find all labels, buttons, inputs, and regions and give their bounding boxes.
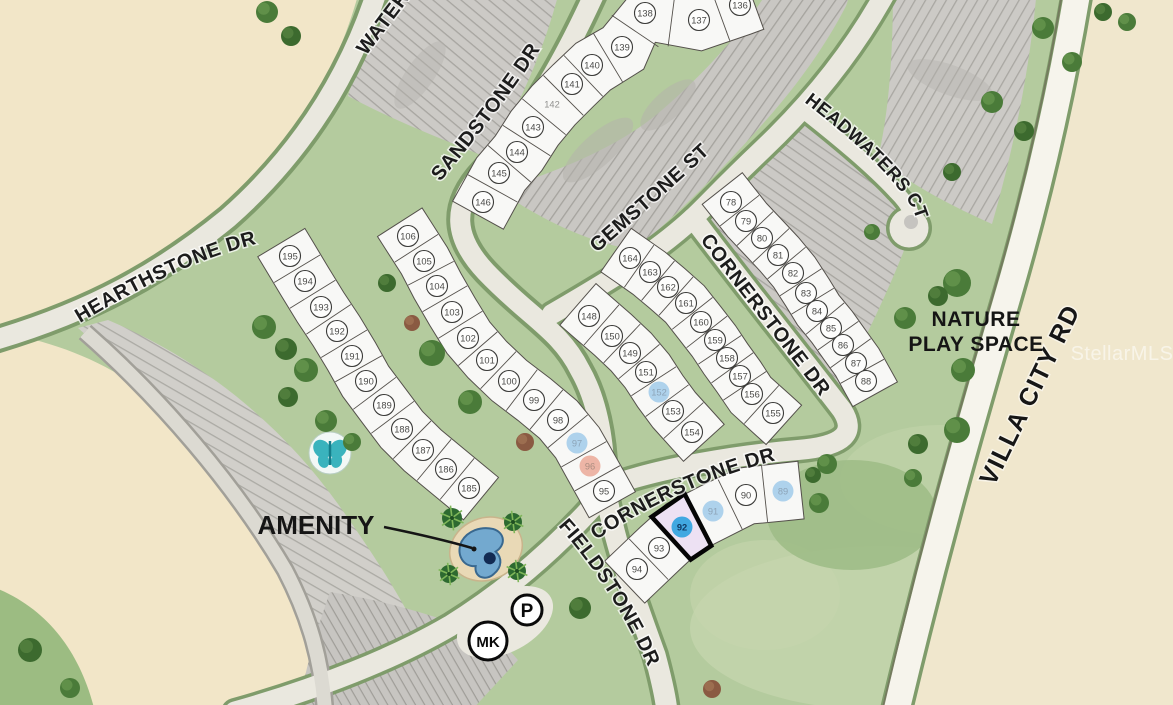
parking-icon: P [512, 595, 542, 625]
svg-text:91: 91 [708, 506, 718, 516]
nature-play-space-label-line1: NATURE [932, 308, 1021, 331]
tree-icon [943, 163, 961, 181]
lot-188-marker: 188 [392, 419, 413, 440]
svg-text:78: 78 [726, 197, 736, 207]
lot-141-marker: 141 [562, 74, 583, 95]
site-plan-map: 1951941931921911901891881871861851361371… [0, 0, 1173, 705]
svg-text:188: 188 [394, 424, 410, 434]
tree-icon [809, 493, 829, 513]
lot-156-marker: 156 [742, 384, 763, 405]
svg-text:103: 103 [444, 307, 460, 317]
svg-text:101: 101 [479, 355, 495, 365]
svg-text:90: 90 [741, 490, 751, 500]
lot-155-marker: 155 [763, 403, 784, 424]
svg-text:194: 194 [297, 276, 313, 286]
lot-96-marker: 96 [580, 456, 601, 477]
tree-icon [275, 338, 297, 360]
tree-icon [981, 91, 1003, 113]
svg-text:106: 106 [400, 231, 416, 241]
tree-icon [516, 433, 534, 451]
svg-text:146: 146 [475, 197, 491, 207]
tree-icon [944, 417, 970, 443]
lot-101-marker: 101 [477, 350, 498, 371]
lot-151-marker: 151 [636, 362, 657, 383]
lot-144-marker: 144 [507, 142, 528, 163]
lot-159-marker: 159 [705, 330, 726, 351]
lot-150-marker: 150 [602, 326, 623, 347]
lot-195-marker: 195 [280, 246, 301, 267]
svg-text:99: 99 [529, 395, 539, 405]
lot-158-marker: 158 [717, 348, 738, 369]
mail-kiosk-icon: MK [469, 622, 507, 660]
tree-icon [703, 680, 721, 698]
svg-text:160: 160 [693, 317, 709, 327]
lot-104-marker: 104 [427, 276, 448, 297]
svg-text:94: 94 [632, 564, 642, 574]
lot-99-marker: 99 [524, 390, 545, 411]
lot-83-marker: 83 [796, 283, 817, 304]
lot-89-marker: 89 [773, 481, 794, 502]
mail-kiosk-letters: MK [476, 634, 499, 651]
lot-161-marker: 161 [676, 293, 697, 314]
svg-text:98: 98 [553, 415, 563, 425]
svg-text:152: 152 [651, 387, 667, 397]
tree-icon [1062, 52, 1082, 72]
lot-189-marker: 189 [374, 395, 395, 416]
svg-text:104: 104 [429, 281, 445, 291]
tree-icon [281, 26, 301, 46]
lot-140-marker: 140 [582, 55, 603, 76]
tree-icon [817, 454, 837, 474]
lot-81-marker: 81 [768, 245, 789, 266]
svg-text:155: 155 [765, 408, 781, 418]
svg-text:84: 84 [812, 306, 822, 316]
lot-160-marker: 160 [691, 312, 712, 333]
lot-153-marker: 153 [663, 401, 684, 422]
svg-text:159: 159 [707, 335, 723, 345]
tree-icon [904, 469, 922, 487]
svg-text:139: 139 [614, 42, 630, 52]
tree-icon [908, 434, 928, 454]
svg-text:150: 150 [604, 331, 620, 341]
svg-text:85: 85 [826, 323, 836, 333]
lot-148-marker: 148 [579, 306, 600, 327]
lot-185-marker: 185 [459, 478, 480, 499]
plat-svg: 1951941931921911901891881871861851361371… [0, 0, 1173, 705]
lot-149-marker: 149 [620, 343, 641, 364]
svg-text:140: 140 [584, 60, 600, 70]
lot-102-marker: 102 [458, 328, 479, 349]
svg-text:193: 193 [313, 302, 329, 312]
tree-icon [458, 390, 482, 414]
lot-103-marker: 103 [442, 302, 463, 323]
lot-100-marker: 100 [499, 371, 520, 392]
lot-163-marker: 163 [640, 262, 661, 283]
svg-text:143: 143 [525, 122, 541, 132]
lot-92-marker: 92 [672, 517, 693, 538]
svg-text:185: 185 [461, 483, 477, 493]
tree-icon [864, 224, 880, 240]
tree-icon [1014, 121, 1034, 141]
lot-94-marker: 94 [627, 559, 648, 580]
lot-98-marker: 98 [548, 410, 569, 431]
lot-139-marker: 139 [612, 37, 633, 58]
lot-91-marker: 91 [703, 501, 724, 522]
svg-text:162: 162 [660, 282, 676, 292]
lot-157-marker: 157 [730, 366, 751, 387]
lot-93-marker: 93 [649, 538, 670, 559]
lot-106-marker: 106 [398, 226, 419, 247]
lot-187-marker: 187 [413, 440, 434, 461]
svg-text:151: 151 [638, 367, 654, 377]
svg-text:154: 154 [684, 427, 700, 437]
svg-text:149: 149 [622, 348, 638, 358]
svg-text:86: 86 [838, 340, 848, 350]
tree-icon [315, 410, 337, 432]
tree-icon [894, 307, 916, 329]
tree-icon [951, 358, 975, 382]
tree-icon [928, 286, 948, 306]
svg-text:92: 92 [677, 522, 687, 532]
svg-text:87: 87 [851, 358, 861, 368]
svg-text:153: 153 [665, 406, 681, 416]
svg-text:145: 145 [491, 168, 507, 178]
tree-icon [1094, 3, 1112, 21]
svg-text:88: 88 [861, 376, 871, 386]
svg-text:138: 138 [637, 8, 653, 18]
tree-icon [1032, 17, 1054, 39]
lot-145-marker: 145 [489, 163, 510, 184]
svg-text:137: 137 [691, 15, 707, 25]
lot-136-marker: 136 [730, 0, 751, 16]
tree-icon [256, 1, 278, 23]
svg-text:144: 144 [509, 147, 525, 157]
lot-194-marker: 194 [295, 271, 316, 292]
svg-text:100: 100 [501, 376, 517, 386]
tree-icon [378, 274, 396, 292]
lot-142-number: 142 [544, 99, 560, 109]
lot-164-marker: 164 [620, 248, 641, 269]
svg-text:89: 89 [778, 486, 788, 496]
lot-191-marker: 191 [342, 346, 363, 367]
lot-162-marker: 162 [658, 277, 679, 298]
lot-137-marker: 137 [689, 10, 710, 31]
tree-icon [805, 467, 821, 483]
svg-text:163: 163 [642, 267, 658, 277]
svg-text:93: 93 [654, 543, 664, 553]
lot-154-marker: 154 [682, 422, 703, 443]
lot-143-marker: 143 [523, 117, 544, 138]
svg-text:95: 95 [599, 486, 609, 496]
tree-icon [404, 315, 420, 331]
tree-icon [569, 597, 591, 619]
tree-icon [419, 340, 445, 366]
svg-text:191: 191 [344, 351, 360, 361]
svg-text:190: 190 [358, 376, 374, 386]
lot-97-marker: 97 [567, 433, 588, 454]
tree-icon [252, 315, 276, 339]
svg-text:82: 82 [788, 268, 798, 278]
tree-icon [18, 638, 42, 662]
stellar-mls-watermark: StellarMLS [1071, 343, 1173, 365]
lot-95-marker: 95 [594, 481, 615, 502]
lot-78-marker: 78 [721, 192, 742, 213]
lot-138-marker: 138 [635, 3, 656, 24]
lot-152-marker: 152 [649, 382, 670, 403]
svg-text:157: 157 [732, 371, 748, 381]
lot-86-marker: 86 [833, 335, 854, 356]
svg-text:148: 148 [581, 311, 597, 321]
svg-text:105: 105 [416, 256, 432, 266]
tree-icon [1118, 13, 1136, 31]
tree-icon [278, 387, 298, 407]
lot-88-marker: 88 [856, 371, 877, 392]
tree-icon [60, 678, 80, 698]
lot-105-marker: 105 [414, 251, 435, 272]
svg-text:79: 79 [741, 216, 751, 226]
svg-text:192: 192 [329, 326, 345, 336]
lot-79-marker: 79 [736, 211, 757, 232]
lot-146-marker: 146 [473, 192, 494, 213]
amenity-label: AMENITY [258, 510, 375, 540]
svg-text:189: 189 [376, 400, 392, 410]
lot-190-marker: 190 [356, 371, 377, 392]
svg-text:80: 80 [757, 233, 767, 243]
lot-192-marker: 192 [327, 321, 348, 342]
tree-icon [294, 358, 318, 382]
parking-letter: P [521, 601, 534, 622]
svg-text:164: 164 [622, 253, 638, 263]
lot-90-marker: 90 [736, 485, 757, 506]
svg-text:83: 83 [801, 288, 811, 298]
svg-text:81: 81 [773, 250, 783, 260]
svg-text:97: 97 [572, 438, 582, 448]
lot-80-marker: 80 [752, 228, 773, 249]
svg-text:141: 141 [564, 79, 580, 89]
lot-193-marker: 193 [311, 297, 332, 318]
tree-icon [343, 433, 361, 451]
svg-text:187: 187 [415, 445, 431, 455]
lot-186-marker: 186 [436, 459, 457, 480]
amenity-arrow-tip [472, 547, 477, 552]
lot-84-marker: 84 [807, 301, 828, 322]
lot-82-marker: 82 [783, 263, 804, 284]
svg-text:96: 96 [585, 461, 595, 471]
svg-text:158: 158 [719, 353, 735, 363]
svg-text:136: 136 [732, 0, 748, 10]
svg-text:161: 161 [678, 298, 694, 308]
svg-text:195: 195 [282, 251, 298, 261]
svg-text:186: 186 [438, 464, 454, 474]
nature-play-space-label-line2: PLAY SPACE [908, 333, 1043, 356]
svg-text:102: 102 [460, 333, 476, 343]
svg-text:156: 156 [744, 389, 760, 399]
